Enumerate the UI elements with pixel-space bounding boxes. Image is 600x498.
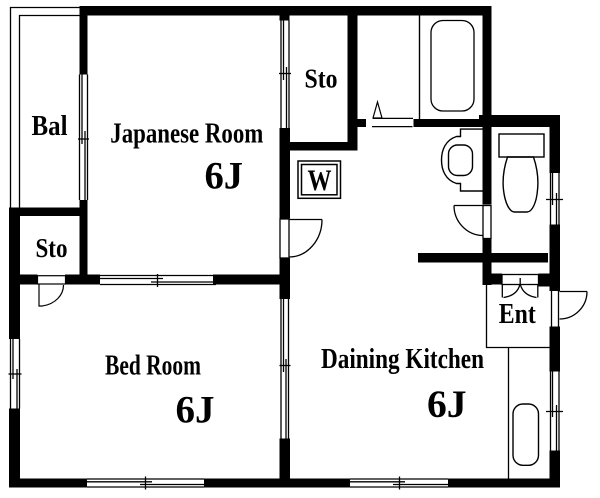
svg-text:6J: 6J [205, 155, 244, 198]
svg-text:W: W [308, 164, 332, 197]
svg-text:Bal: Bal [32, 111, 68, 142]
svg-text:Sto: Sto [305, 64, 338, 94]
svg-text:6J: 6J [176, 389, 215, 432]
svg-text:Bed Room: Bed Room [105, 351, 201, 382]
svg-text:Ent: Ent [499, 299, 537, 330]
svg-text:Daining Kitchen: Daining Kitchen [321, 344, 484, 375]
svg-text:Japanese Room: Japanese Room [110, 118, 263, 149]
svg-text:Sto: Sto [36, 233, 68, 263]
svg-text:6J: 6J [427, 383, 467, 426]
